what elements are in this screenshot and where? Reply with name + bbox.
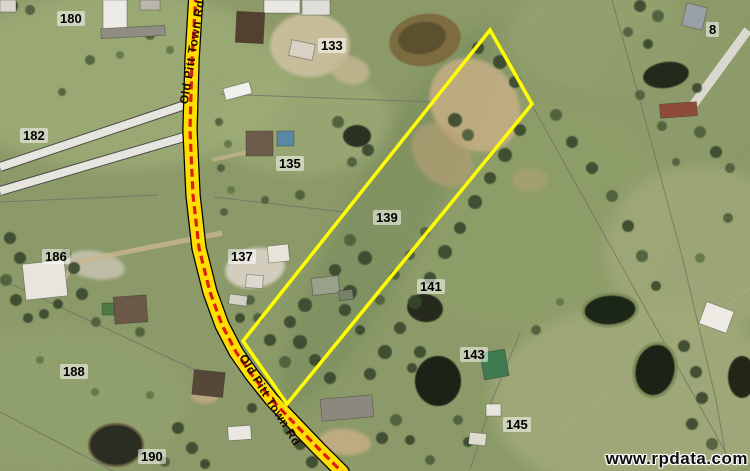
aerial-map[interactable]: 1801821861881901331351371391411431458Old… bbox=[0, 0, 750, 471]
aerial-photo-background bbox=[0, 0, 750, 471]
rpdata-watermark: www.rpdata.com bbox=[606, 449, 748, 469]
